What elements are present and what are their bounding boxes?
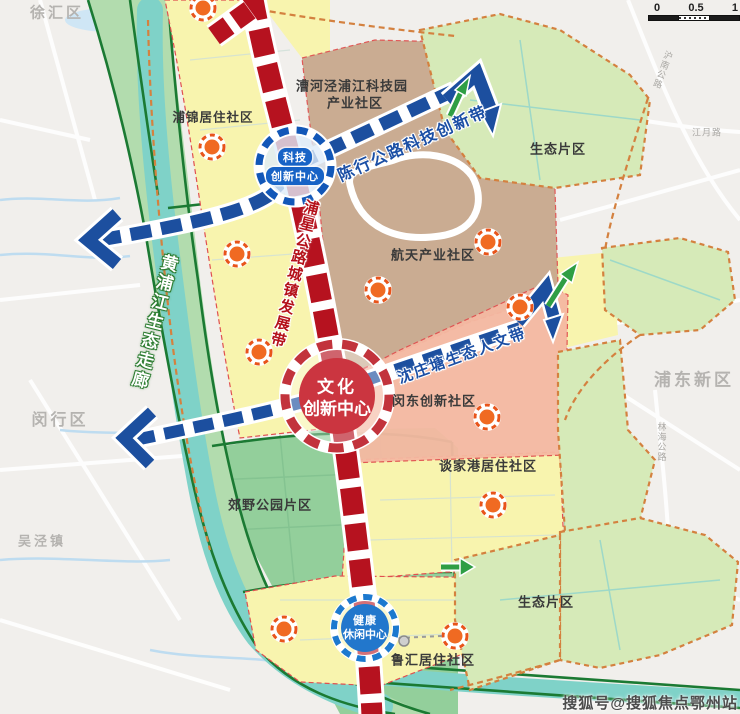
- health-center-label-line2: 休闲中心: [343, 626, 387, 642]
- region-label-eco-se: 生态片区: [518, 592, 574, 611]
- region-label-luhui: 鲁汇居住社区: [391, 650, 475, 669]
- tech-center-label-line1: 科技: [278, 148, 312, 166]
- scale-segment: [710, 16, 739, 20]
- region-label-jiaoye: 郊野公园片区: [228, 495, 312, 514]
- road-label-hunan: 沪南公路: [650, 49, 676, 91]
- corridor-label-puxing: 浦星公路城镇发展带: [265, 197, 322, 351]
- district-label-minhang: 闵行区: [31, 406, 88, 430]
- scale-tick-0: 0: [654, 2, 660, 14]
- region-label-caohejing-line2: 产业社区: [327, 93, 383, 112]
- district-label-wujing: 吴泾镇: [18, 531, 66, 550]
- region-label-tanjiagang: 谈家港居住社区: [439, 456, 537, 475]
- region-label-caohejing-line1: 漕河泾浦江科技园: [296, 76, 408, 95]
- culture-center-label-line2: 创新中心: [303, 395, 371, 420]
- region-label-eco-ne: 生态片区: [530, 139, 586, 158]
- corridor-label-shenzhuangtang: 沈庄塘生态人文带: [395, 322, 530, 388]
- road-label-jiangyue: 江月路: [692, 126, 722, 139]
- culture-center-label-line1: 文化: [317, 373, 357, 398]
- scale-segment: [678, 16, 709, 20]
- planning-map: 徐汇区 闵行区 吴泾镇 浦东新区 浦锦居住社区 漕河泾浦江科技园 产业社区 生态…: [0, 0, 740, 714]
- corridor-label-huangpu: 黄浦江生态走廊: [124, 251, 182, 393]
- region-label-hangtian: 航天产业社区: [391, 245, 475, 264]
- label-layer: 徐汇区 闵行区 吴泾镇 浦东新区 浦锦居住社区 漕河泾浦江科技园 产业社区 生态…: [0, 0, 740, 714]
- watermark-text: 搜狐号@搜狐焦点鄂州站: [562, 692, 738, 713]
- road-label-linhai: 林海公路: [656, 422, 669, 462]
- region-label-pujin: 浦锦居住社区: [172, 107, 253, 126]
- scale-bar: 0 0.5 1: [648, 2, 740, 21]
- region-label-mindong: 闵东创新社区: [392, 391, 476, 410]
- district-label-xuhui: 徐汇区: [30, 2, 84, 23]
- scale-tick-05: 0.5: [688, 2, 703, 14]
- tech-center-label-line2: 创新中心: [266, 167, 324, 185]
- scale-tick-1: 1: [732, 2, 738, 14]
- district-label-pudong: 浦东新区: [654, 366, 734, 391]
- health-center-label-line1: 健康: [353, 612, 377, 628]
- scale-segment: [649, 16, 678, 20]
- corridor-label-chenhang: 陈行公路科技创新带: [333, 98, 491, 186]
